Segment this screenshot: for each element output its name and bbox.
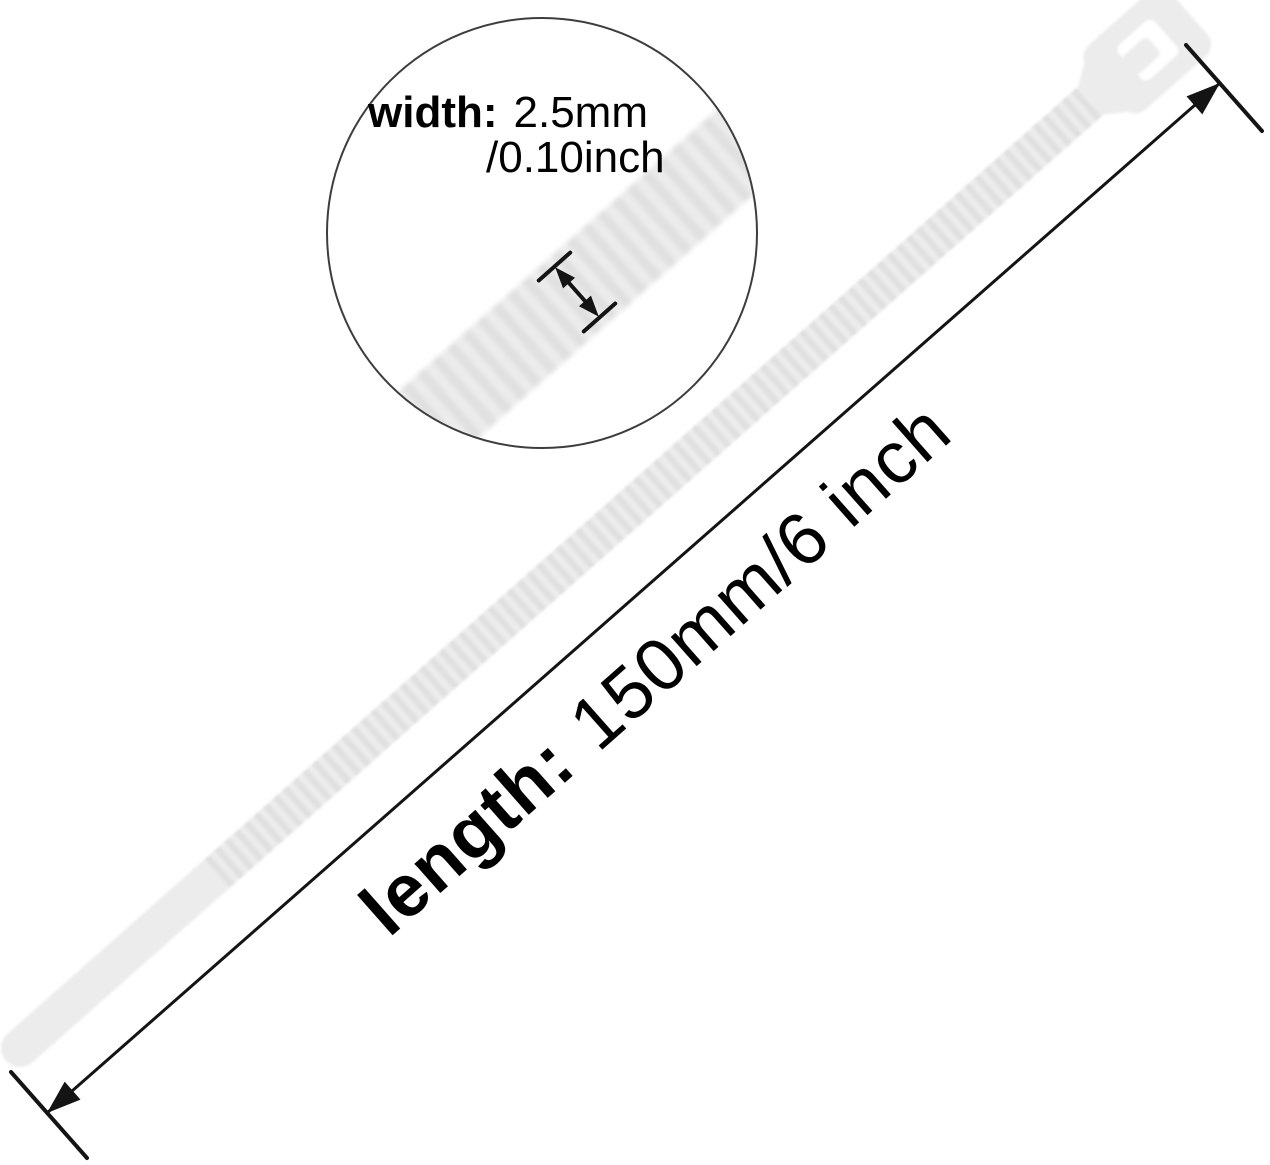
cable-tie-dimension-diagram: length:150mm/6 inch width:2.5mm /0.10inc…	[0, 0, 1270, 1165]
width-label: width:	[367, 88, 498, 137]
width-inch-value: /0.10inch	[486, 133, 665, 182]
width-value: 2.5mm	[514, 88, 648, 137]
